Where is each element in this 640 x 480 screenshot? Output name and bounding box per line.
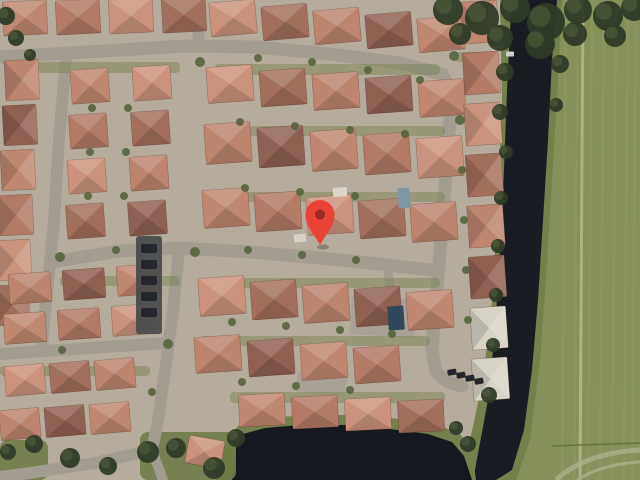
parked-car bbox=[141, 260, 157, 269]
shrub-icon bbox=[364, 66, 372, 74]
house bbox=[462, 51, 501, 95]
tree-highlight bbox=[100, 458, 110, 468]
shrub-icon bbox=[308, 58, 316, 66]
house bbox=[465, 153, 504, 197]
house bbox=[247, 338, 295, 377]
house bbox=[310, 128, 359, 171]
house bbox=[397, 399, 445, 433]
house bbox=[198, 275, 247, 316]
tree-highlight bbox=[490, 289, 498, 297]
shrub-icon bbox=[190, 247, 200, 257]
tree-highlight bbox=[482, 388, 491, 397]
tree-highlight bbox=[527, 31, 544, 48]
house bbox=[127, 200, 167, 237]
shrub-icon bbox=[416, 76, 424, 84]
satellite-map[interactable] bbox=[0, 0, 640, 480]
house bbox=[70, 68, 110, 105]
tree-highlight bbox=[139, 443, 151, 455]
pin-shadow bbox=[317, 245, 329, 250]
house bbox=[344, 397, 392, 431]
house bbox=[2, 104, 38, 146]
house bbox=[365, 11, 414, 49]
house bbox=[353, 345, 401, 384]
house bbox=[0, 194, 34, 236]
shrub-icon bbox=[352, 256, 360, 264]
house bbox=[94, 357, 136, 390]
house bbox=[3, 312, 47, 345]
house bbox=[300, 341, 348, 380]
shrub-icon bbox=[241, 184, 249, 192]
house bbox=[68, 113, 108, 150]
house bbox=[130, 110, 170, 147]
house bbox=[313, 7, 362, 45]
house bbox=[49, 360, 91, 393]
tree-highlight bbox=[606, 27, 618, 39]
shrub-icon bbox=[458, 166, 466, 174]
house bbox=[204, 121, 253, 164]
shrub-icon bbox=[244, 246, 252, 254]
tree-highlight bbox=[62, 450, 73, 461]
tree-highlight bbox=[489, 27, 503, 41]
tree-highlight bbox=[530, 6, 551, 27]
house bbox=[254, 191, 303, 232]
shrub-icon bbox=[195, 57, 205, 67]
shrub-icon bbox=[84, 192, 92, 200]
house bbox=[129, 155, 169, 192]
tree-highlight bbox=[450, 422, 458, 430]
house bbox=[161, 0, 207, 33]
shrub-icon bbox=[346, 126, 354, 134]
tree-highlight bbox=[487, 339, 495, 347]
house bbox=[4, 363, 46, 396]
shrub-icon bbox=[351, 192, 359, 200]
tree-highlight bbox=[552, 56, 562, 66]
house bbox=[291, 395, 339, 429]
tree-highlight bbox=[1, 445, 10, 454]
house bbox=[108, 0, 154, 34]
shrub-icon bbox=[449, 51, 459, 61]
parked-car bbox=[141, 292, 157, 301]
house bbox=[261, 3, 310, 41]
tree-highlight bbox=[168, 440, 179, 451]
shrub-icon bbox=[88, 104, 96, 112]
detail-structure bbox=[506, 52, 514, 57]
house bbox=[410, 201, 459, 242]
tree-highlight bbox=[550, 99, 558, 107]
tree-highlight bbox=[9, 31, 18, 40]
tree-highlight bbox=[205, 459, 217, 471]
shrub-icon bbox=[254, 54, 262, 62]
shrub-icon bbox=[58, 346, 66, 354]
house bbox=[194, 334, 242, 373]
house bbox=[132, 65, 172, 102]
house bbox=[250, 279, 299, 320]
house bbox=[302, 282, 351, 323]
tree-highlight bbox=[25, 50, 32, 57]
shrub-icon bbox=[236, 118, 244, 126]
tree-highlight bbox=[26, 436, 36, 446]
shrub-icon bbox=[112, 246, 120, 254]
house bbox=[8, 272, 52, 305]
pin-dot bbox=[315, 210, 325, 220]
shrub-icon bbox=[55, 252, 65, 262]
shrub-icon bbox=[148, 388, 156, 396]
map-canvas[interactable] bbox=[0, 0, 640, 480]
house bbox=[418, 78, 466, 117]
tree-highlight bbox=[565, 24, 578, 37]
house bbox=[363, 132, 412, 175]
tree-highlight bbox=[595, 3, 612, 20]
house bbox=[259, 68, 307, 107]
house bbox=[312, 71, 360, 110]
detail-structure bbox=[387, 305, 405, 330]
shrub-icon bbox=[455, 115, 465, 125]
house bbox=[365, 75, 413, 114]
detail-structure bbox=[333, 187, 348, 197]
house bbox=[65, 203, 105, 240]
shrub-icon bbox=[336, 326, 344, 334]
tree-highlight bbox=[228, 430, 238, 440]
shrub-icon bbox=[122, 148, 130, 156]
shrub-icon bbox=[346, 386, 354, 394]
shrub-icon bbox=[464, 316, 472, 324]
house bbox=[406, 289, 455, 330]
shrub-icon bbox=[238, 378, 246, 386]
shrub-icon bbox=[298, 251, 306, 259]
house bbox=[57, 308, 101, 341]
house bbox=[202, 187, 251, 228]
shrub-icon bbox=[401, 130, 409, 138]
parked-car bbox=[141, 276, 157, 285]
shrub-icon bbox=[292, 382, 300, 390]
house bbox=[44, 404, 86, 437]
house bbox=[55, 0, 101, 35]
house bbox=[238, 393, 286, 427]
shrub-icon bbox=[120, 192, 128, 200]
house bbox=[89, 401, 131, 434]
shrub-icon bbox=[296, 188, 304, 196]
house bbox=[62, 268, 106, 301]
shrub-icon bbox=[291, 122, 299, 130]
detail-structure bbox=[397, 188, 410, 209]
house bbox=[0, 149, 36, 191]
house bbox=[206, 64, 254, 103]
shrub-icon bbox=[388, 330, 396, 338]
house bbox=[416, 135, 465, 178]
tree-highlight bbox=[468, 4, 487, 23]
parked-car bbox=[141, 244, 157, 253]
tree-highlight bbox=[461, 437, 470, 446]
house bbox=[209, 0, 258, 37]
shrub-icon bbox=[282, 322, 290, 330]
shrub-icon bbox=[163, 339, 173, 349]
shrub-icon bbox=[86, 148, 94, 156]
shrub-icon bbox=[460, 216, 468, 224]
shrub-icon bbox=[462, 266, 470, 274]
shrub-icon bbox=[124, 104, 132, 112]
tree-highlight bbox=[493, 105, 502, 114]
house bbox=[257, 125, 306, 168]
shrub-icon bbox=[228, 318, 236, 326]
tree-highlight bbox=[492, 240, 500, 248]
tree-highlight bbox=[500, 146, 508, 154]
tree-highlight bbox=[495, 192, 503, 200]
detail-structure bbox=[294, 234, 307, 243]
tree-highlight bbox=[451, 25, 463, 37]
house bbox=[67, 158, 107, 195]
house bbox=[4, 59, 40, 101]
tree-highlight bbox=[497, 64, 507, 74]
parked-car bbox=[141, 308, 157, 317]
